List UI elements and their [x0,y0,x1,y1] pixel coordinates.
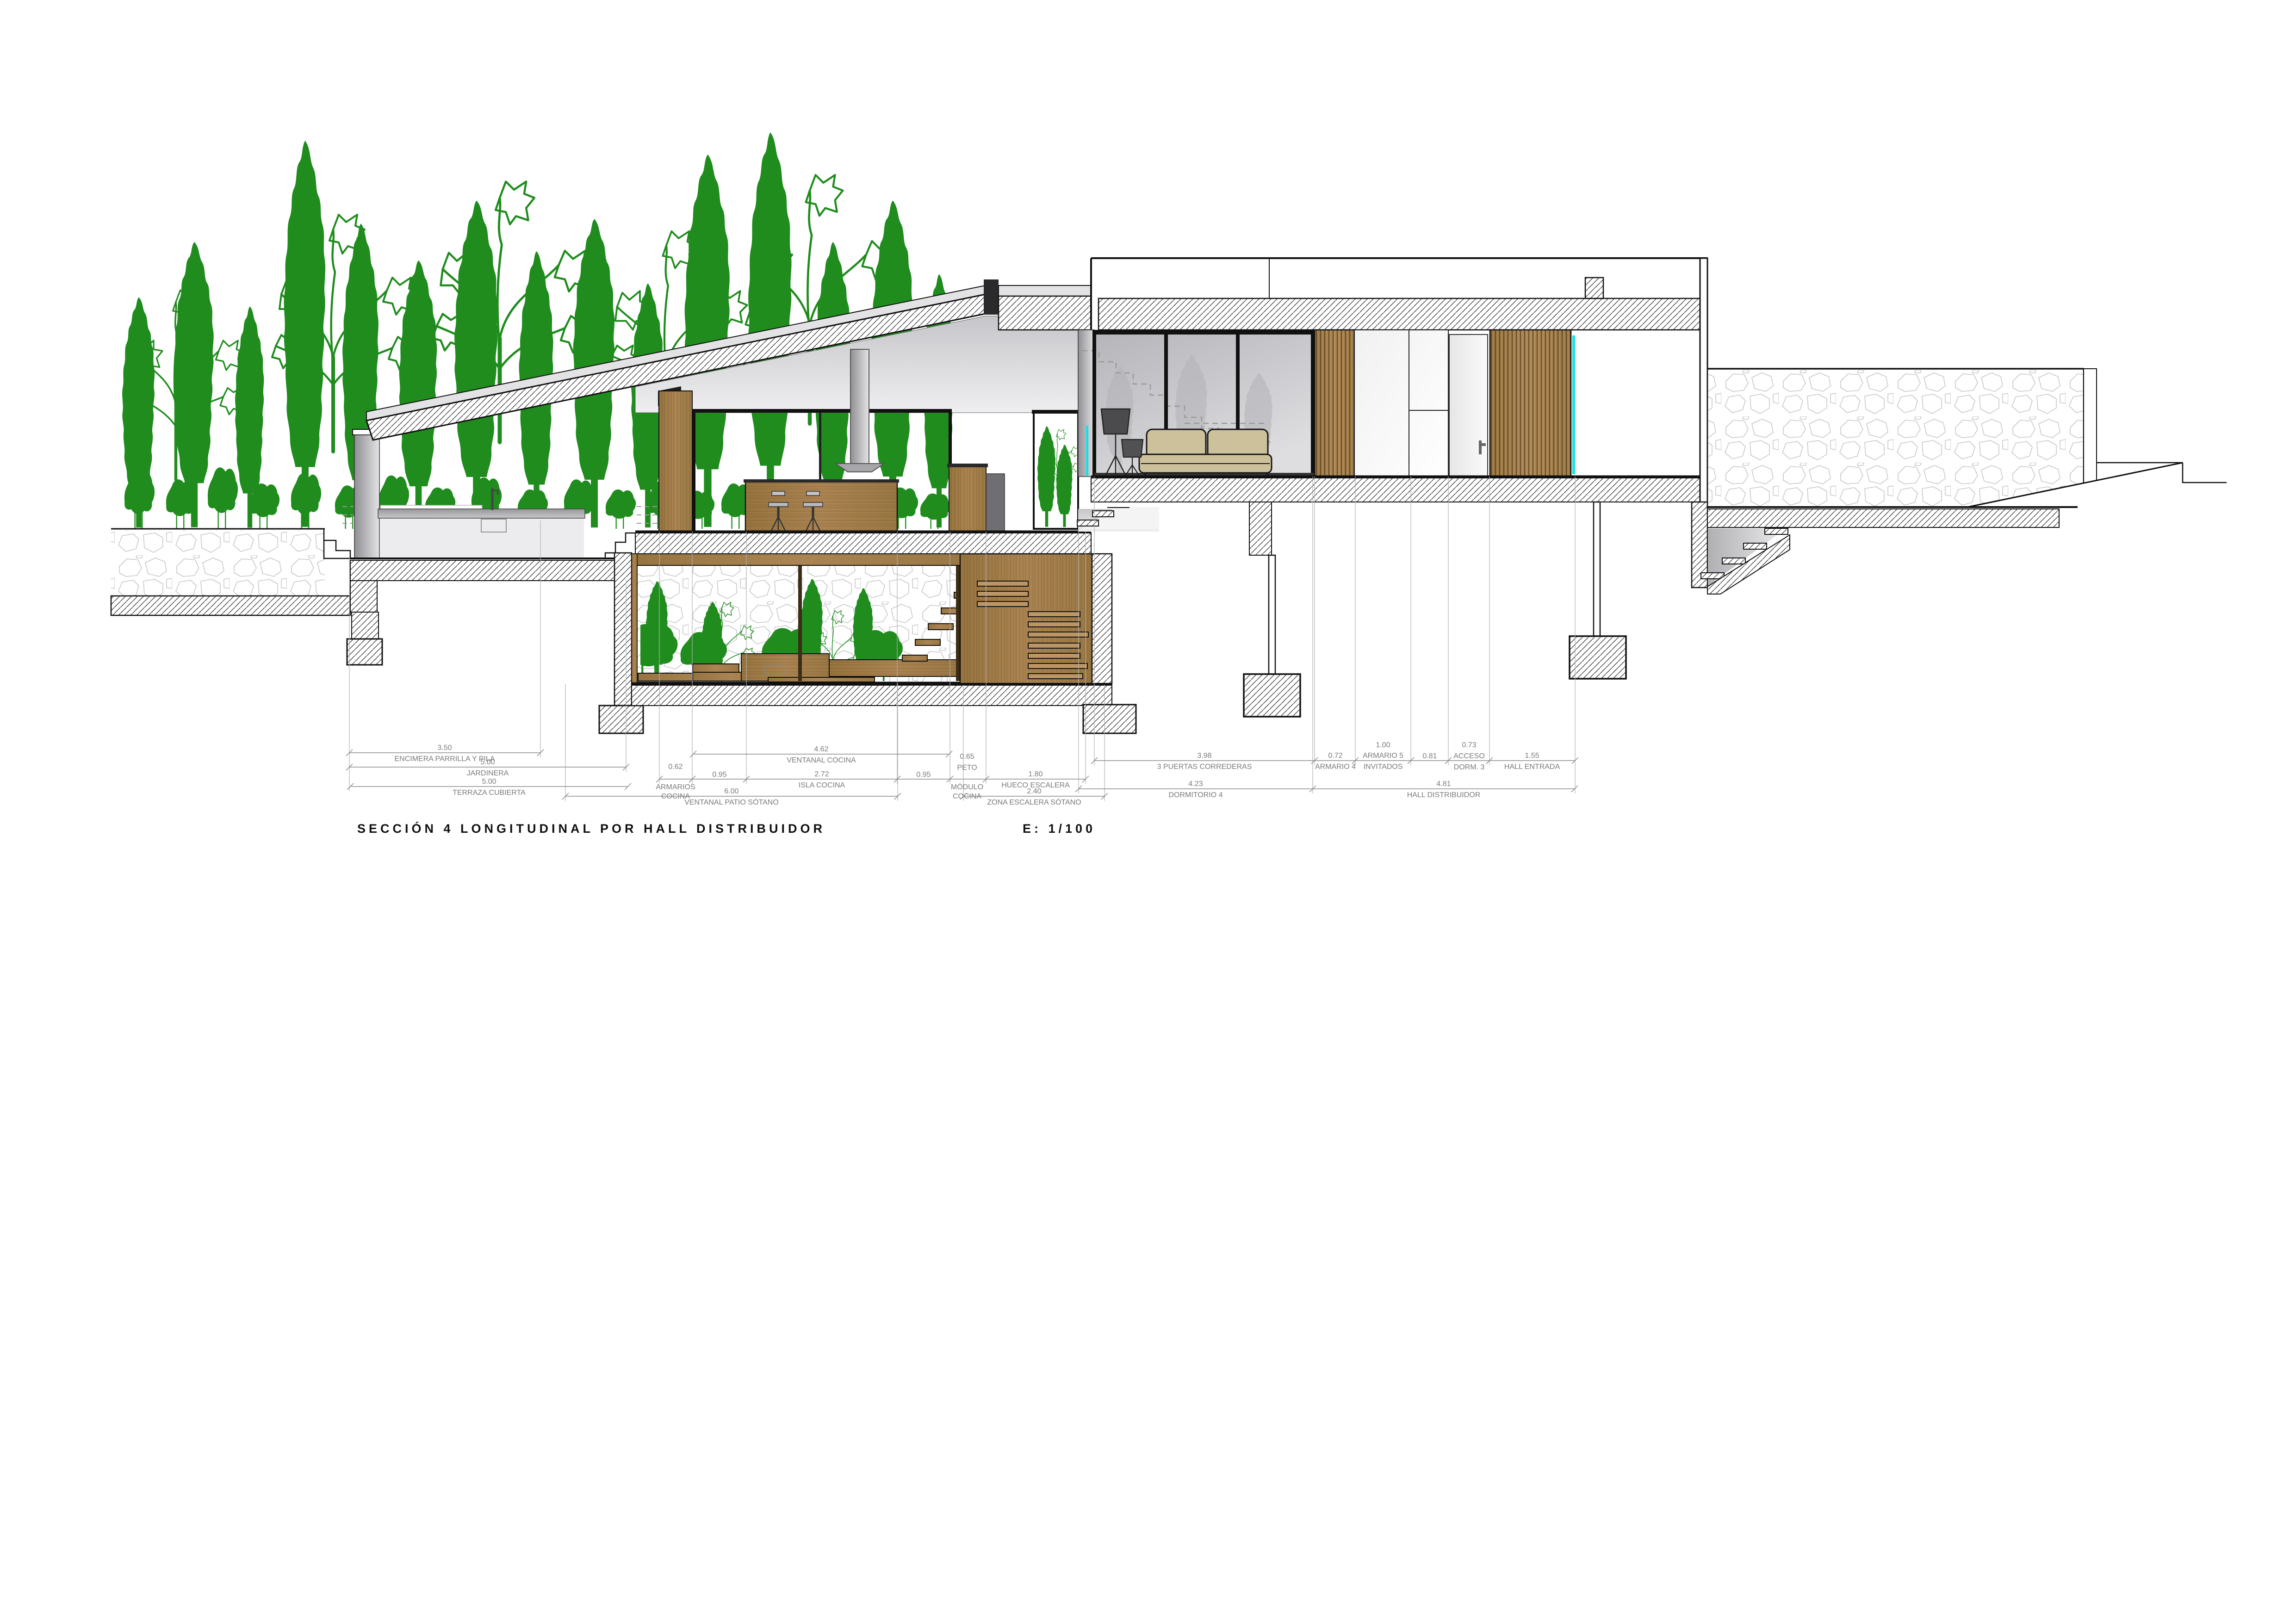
kitchen-peto-cap [947,464,988,467]
footing-2 [1570,636,1626,679]
dim-value: 2.72 [814,770,829,778]
dim-value: 1.00 [1376,741,1390,749]
bbq-counter-backsplash [380,505,482,509]
stone-wall [1707,369,2084,507]
roof-upstand [1585,278,1603,298]
glass-edge-cyan-hall [1572,335,1575,474]
main-roof-slab [1098,298,1707,330]
main-volume [1078,258,1707,717]
basement-right-wall [1092,554,1112,684]
dim-value: 0.95 [916,771,931,779]
entrance-exterior [1701,369,2227,594]
roof-connector-finish [999,285,1098,296]
basement-left-footing [599,706,643,733]
basement [599,553,1136,733]
terrace-floor-slab [350,560,635,581]
architectural-section-sheet: 3.50 ENCIMERA PARRILLA Y PILA 5.00 JARDI… [0,0,2296,1623]
dim-label: DORM. 3 [1454,763,1485,771]
wardrobe-armario4-slats [1315,330,1354,477]
main-right-wall [1700,258,1707,507]
dim-value: 4.23 [1188,780,1203,788]
dim-row: 0.62 ARMARIOS COCINA 0.95 2.72 ISLA COCI… [656,753,1089,800]
kitchen-cabinets-grain [659,391,692,532]
dim-value: 3.98 [1197,752,1211,760]
dim-row: 3.50 ENCIMERA PARRILLA Y PILA [346,744,544,763]
jardinera [111,529,350,615]
wardrobe-armario5 [1354,330,1448,477]
dim-label: INVITADOS [1363,763,1402,771]
dim-row: 4.62 VENTANAL COCINA [690,745,952,764]
kitchen-appliance-unit [986,474,1005,532]
drawing-title: SECCIÓN 4 LONGITUDINAL POR HALL DISTRIBU… [357,821,825,836]
dim-label: VENTANAL PATIO SÓTANO [684,798,779,806]
stone-wall-cap [2084,369,2097,483]
dim-label: ARMARIO 4 [1315,763,1356,771]
basement-stair-wall [960,554,1092,684]
dim-label: PETO [957,764,977,772]
dim-value: 2.40 [1027,787,1041,795]
glass-edge-cyan-left [1086,426,1088,476]
terrace-column [354,435,379,558]
dim-label: 3 PUERTAS CORREDERAS [1157,763,1252,771]
basement-floor-slab [632,685,1112,706]
kitchen-peto-grain [949,466,986,532]
dim-value: 1.80 [1028,770,1043,778]
kitchen-floor-slab [635,533,1091,554]
basement-right-footing [1083,705,1136,733]
dim-value: 4.62 [814,745,828,753]
floor-beam [1249,502,1272,555]
dim-row: 5.00 TERRAZA CUBIERTA [347,778,631,797]
dim-value: 3.50 [437,744,452,752]
dim-value: 0.65 [960,753,974,761]
dim-row: 6.00 VENTANAL PATIO SÓTANO 2.40 ZONA ESC… [562,787,1108,806]
hall-slat-panel-slats [1490,330,1571,477]
dim-value: 5.00 [480,758,495,766]
dim-label: HALL ENTRADA [1504,763,1560,771]
section-drawing: 3.50 ENCIMERA PARRILLA Y PILA 5.00 JARDI… [0,0,2296,1623]
dim-label: JARDINERA [467,769,509,777]
dim-value: 4.81 [1436,780,1451,788]
title-block: SECCIÓN 4 LONGITUDINAL POR HALL DISTRIBU… [357,821,1096,836]
dim-label: ZONA ESCALERA SÓTANO [987,798,1081,806]
dim-label: ISLA COCINA [799,781,845,789]
dim-value: 5.00 [482,778,496,786]
entrance-platform-slab [1707,509,2059,527]
dim-value: 0.72 [1328,752,1342,760]
dim-label: DORMITORIO 4 [1168,791,1222,799]
dim-value: 0.62 [668,763,683,771]
dim-value: 0.73 [1462,741,1476,749]
jardinera-steps [324,529,350,558]
terrace-stem-wall [350,581,377,612]
jardinera-slab [111,596,350,615]
bbq-counter-top [378,509,585,518]
dim-label: ARMARIOS [656,783,695,791]
stem-wall-1 [1269,555,1275,674]
stair-window [1032,410,1081,529]
dim-label: HALL DISTRIBUIDOR [1407,791,1481,799]
dim-value: 6.00 [724,787,738,795]
terrace-footing [347,639,382,665]
dim-label: VENTANAL COCINA [787,756,856,764]
kitchen-island-countertop [744,479,899,483]
dim-row: 4.23 DORMITORIO 4 4.81 HALL DISTRIBUIDOR [1075,780,1578,799]
drawing-scale: E: 1/100 [1023,822,1096,836]
stem-wall-2 [1594,502,1600,636]
dimensions: 3.50 ENCIMERA PARRILLA Y PILA 5.00 JARDI… [346,741,1578,806]
basement-left-wall [614,553,632,708]
dim-row: 3.98 3 PUERTAS CORREDERAS 0.72 ARMARIO 4… [1091,741,1578,771]
living-floor-slab [1091,478,1707,502]
dim-label: ARMARIO 5 [1363,752,1403,760]
dim-value: 1.55 [1525,752,1539,760]
terrace-stem-wall-lower [352,612,379,639]
dim-row: 5.00 JARDINERA [346,758,629,777]
dim-label: ENCIMERA PARRILLA Y PILA [395,755,495,763]
footing-1 [1244,674,1300,717]
door-dorm3 [1449,335,1488,477]
bbq-counter-base [380,518,584,558]
sofa [1139,429,1272,477]
roof-ridge-cap [984,279,999,315]
roof-connector-slab [999,296,1098,330]
dim-label: MÓDULO [951,782,983,791]
dim-value: 0.95 [712,771,726,779]
dim-label: ACCESO [1453,752,1485,760]
dim-label: TERRAZA CUBIERTA [453,789,526,797]
dim-value: 0.81 [1422,752,1437,760]
jardinera-subsoil [111,530,325,596]
